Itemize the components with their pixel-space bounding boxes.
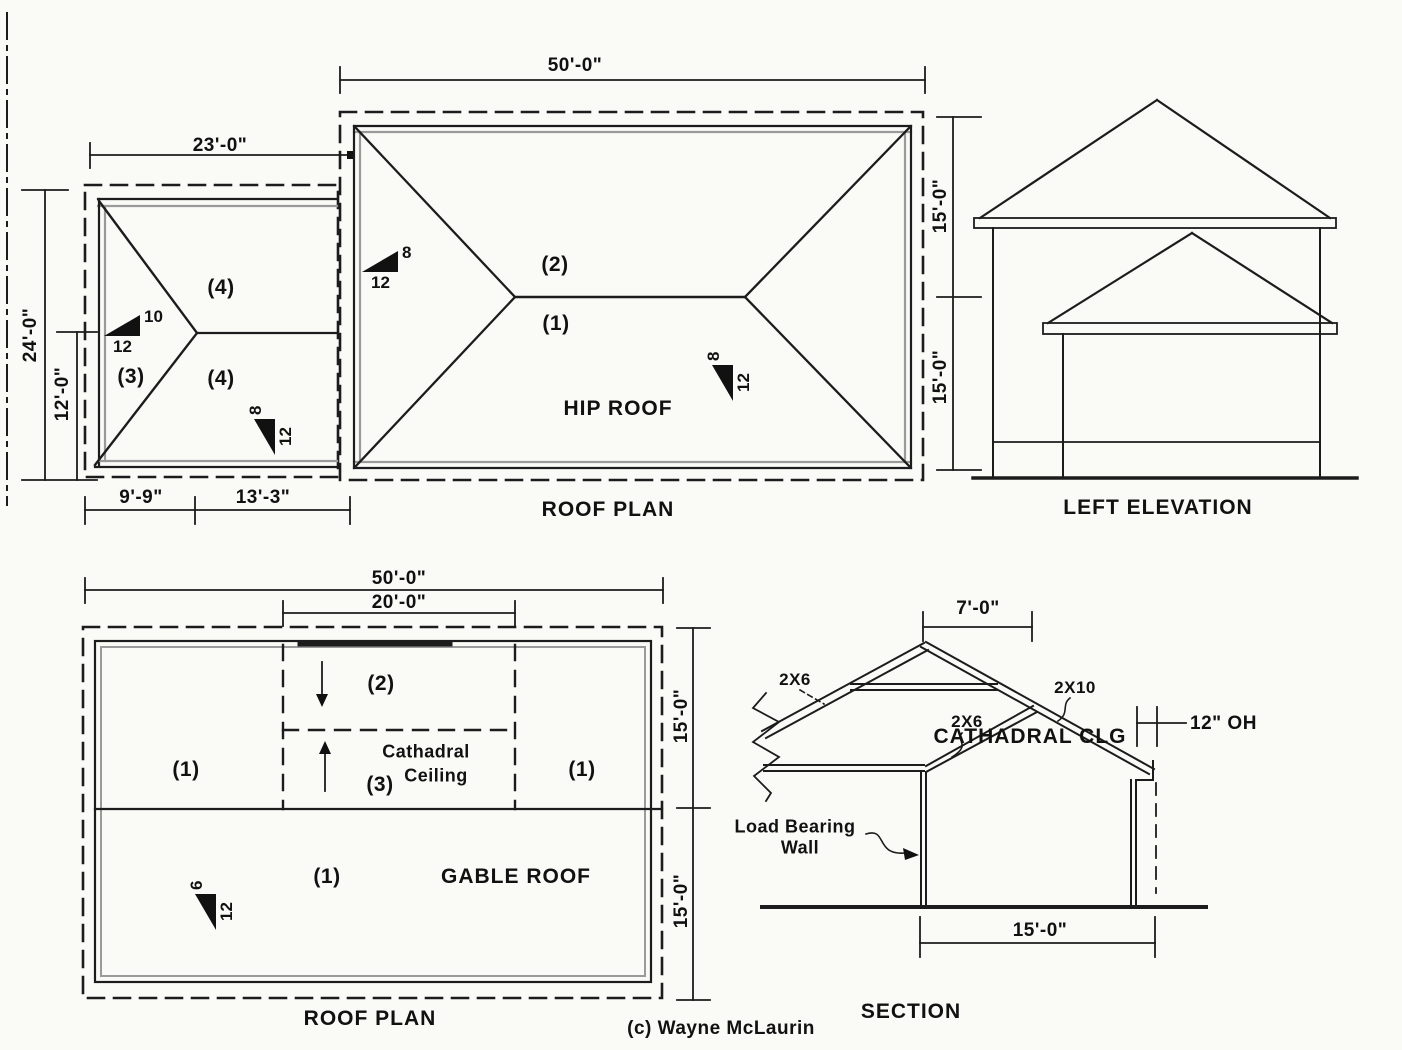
slope-rise: 8: [704, 352, 724, 361]
dim-24ft: 24'-0": [20, 308, 42, 363]
area-label-1-right-gable: (1): [568, 758, 595, 782]
copyright-text: (c) Wayne McLaurin: [627, 1018, 815, 1040]
slope-marker-8-12-left: 8 12: [362, 242, 426, 298]
slope-run: 12: [217, 902, 237, 921]
gable-roof-title: GABLE ROOF: [441, 865, 591, 889]
area-label-1-lower-gable: (1): [313, 865, 340, 889]
area-label-2-gable: (2): [367, 672, 394, 696]
architectural-drawing-sheet: 23'-0" 24'-0" 12'-0" 9'-9" 13'-3" (4) (3…: [0, 0, 1402, 1050]
dim-15ft-upper-hip: 15'-0": [930, 179, 952, 234]
cathedral-clg-label: CATHADRAL CLG: [933, 725, 1126, 749]
slope-rise: 6: [187, 881, 207, 890]
gable-roof-plan-caption: ROOF PLAN: [304, 1007, 437, 1031]
dim-7ft-section: 7'-0": [956, 598, 1000, 620]
dim-50ft-gable: 50'-0": [372, 568, 427, 590]
slope-run: 12: [371, 273, 390, 293]
area-label-4-lower: (4): [207, 367, 234, 391]
slope-marker-8-12-vertical: 8 12: [245, 391, 301, 455]
dim-15ft-upper-gable: 15'-0": [671, 689, 693, 744]
load-bearing-wall-label-line1: Load Bearing: [734, 817, 855, 838]
dim-50ft-hip: 50'-0": [548, 55, 603, 77]
area-label-3-gable: (3): [366, 773, 393, 797]
dim-13ft3: 13'-3": [236, 487, 291, 509]
area-label-1-left-gable: (1): [172, 758, 199, 782]
dim-15ft-section: 15'-0": [1013, 920, 1068, 942]
dim-23ft: 23'-0": [193, 135, 248, 157]
cathedral-ceiling-label-line1: Cathadral: [382, 742, 470, 763]
label-2x10-right-rafter: 2X10: [1054, 678, 1096, 698]
area-label-1-hip: (1): [542, 312, 569, 336]
slope-run: 12: [276, 427, 296, 446]
section-lines: [753, 612, 1206, 957]
slope-rise: 10: [144, 307, 163, 327]
left-elevation-lines: [973, 100, 1357, 478]
cathedral-ceiling-label-line2: Ceiling: [404, 766, 468, 787]
slope-marker-8-12-right-vertical: 8 12: [703, 337, 759, 401]
dim-12in-overhang: 12" OH: [1190, 713, 1257, 735]
section-caption: SECTION: [861, 1000, 961, 1024]
load-bearing-wall-label-line2: Wall: [781, 838, 819, 859]
dim-15ft-lower-hip: 15'-0": [930, 350, 952, 405]
area-label-3: (3): [117, 365, 144, 389]
label-2x6-left-rafter: 2X6: [779, 670, 811, 690]
slope-rise: 8: [246, 406, 266, 415]
dim-20ft-gable: 20'-0": [372, 592, 427, 614]
dim-15ft-lower-gable: 15'-0": [671, 874, 693, 929]
slope-rise: 8: [402, 243, 411, 263]
slope-marker-6-12-vertical: 6 12: [186, 866, 242, 930]
dim-9ft9: 9'-9": [119, 487, 163, 509]
area-label-2-hip: (2): [541, 253, 568, 277]
left-elevation-caption: LEFT ELEVATION: [1063, 496, 1252, 520]
dim-12ft: 12'-0": [52, 367, 74, 422]
small-roof-plan-lines: [22, 143, 355, 524]
slope-marker-10-12: 10 12: [104, 306, 168, 362]
slope-run: 12: [113, 337, 132, 357]
hip-roof-title: HIP ROOF: [563, 397, 672, 421]
area-label-4-upper: (4): [207, 276, 234, 300]
hip-roof-plan-caption: ROOF PLAN: [542, 498, 675, 522]
slope-run: 12: [734, 373, 754, 392]
gable-roof-plan-lines: [83, 578, 710, 1000]
